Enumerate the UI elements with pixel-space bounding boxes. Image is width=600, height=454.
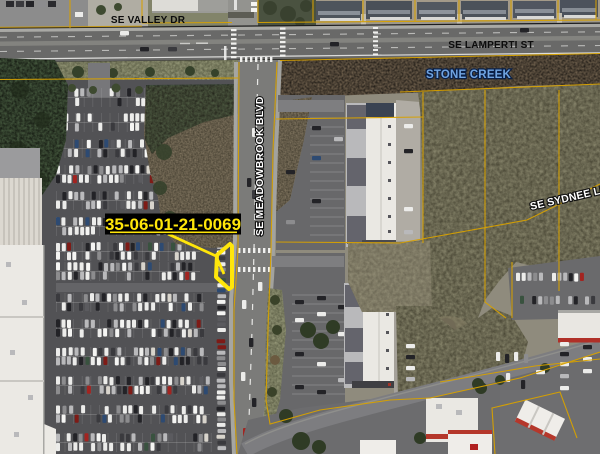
svg-text:SE MEADOWBROOK BLVD: SE MEADOWBROOK BLVD: [254, 96, 266, 236]
svg-text:35-06-01-21-0069: 35-06-01-21-0069: [105, 215, 241, 234]
svg-text:STONE CREEK: STONE CREEK: [426, 69, 512, 81]
svg-text:SE LAMPERTI ST: SE LAMPERTI ST: [448, 40, 534, 51]
svg-text:SE VALLEY DR: SE VALLEY DR: [111, 15, 186, 26]
